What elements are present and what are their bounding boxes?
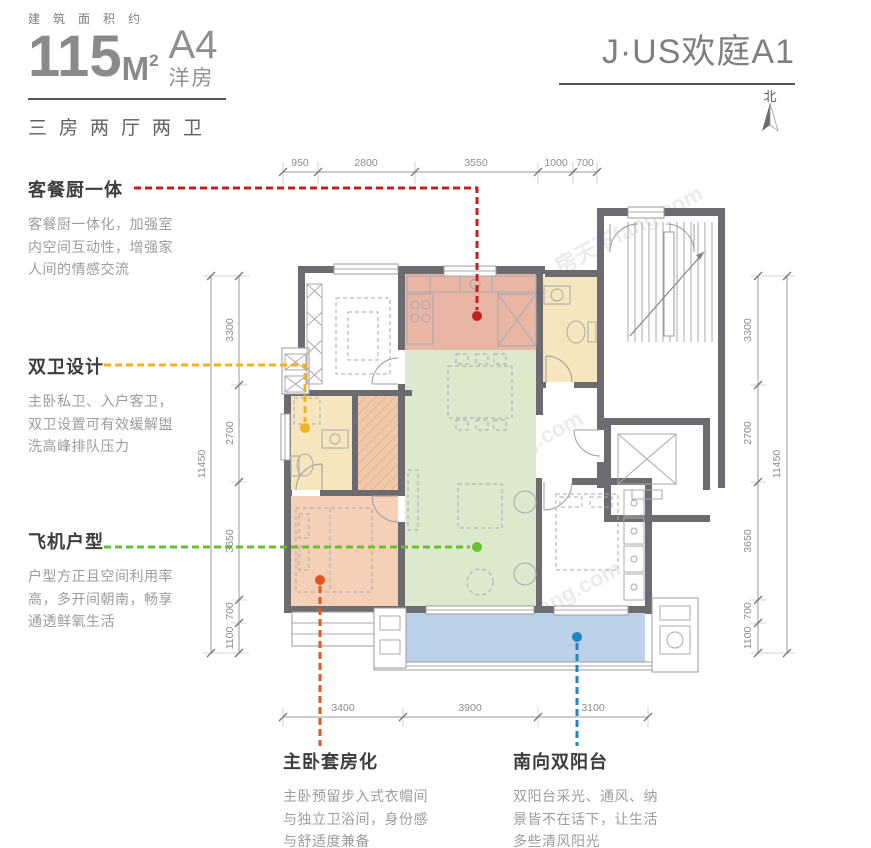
svg-text:3300: 3300 [224,318,236,342]
svg-text:3900: 3900 [458,702,482,714]
project-divider [559,83,795,85]
svg-text:700: 700 [742,602,754,620]
svg-text:3650: 3650 [742,529,754,553]
north-arrow-icon: 北 [762,89,778,131]
callout-master: 主卧套房化 主卧预留步入式衣帽间与独立卫浴间，身份感与舒适度兼备 [283,748,453,848]
svg-text:3650: 3650 [224,529,236,553]
svg-text:950: 950 [291,157,309,169]
unit-type: A4 洋房 [169,25,218,89]
svg-text:2700: 2700 [224,421,236,445]
callout-desc: 双阳台采光、通风、纳景皆不在话下，让生活多些清风阳光 [513,785,661,848]
svg-text:1000: 1000 [544,157,568,169]
stair-core [618,222,712,499]
callout-desc: 主卧私卫、入户客卫，双卫设置可有效缓解盥洗高峰排队压力 [28,390,176,458]
dimensions-top: 950 2800 3550 1000 700 [279,157,601,184]
svg-text:11450: 11450 [771,450,783,479]
callout-title: 飞机户型 [28,528,198,554]
svg-text:北: 北 [763,89,776,104]
svg-text:3550: 3550 [464,157,488,169]
room-balcony [406,613,645,664]
area-number: 115 [28,29,122,84]
callout-living: 飞机户型 户型方正且空间利用率高，多开间朝南，畅享通透鲜氧生活 [28,528,198,633]
callout-title: 主卧套房化 [283,748,453,774]
callout-desc: 客餐厨一体化，加强室内空间互动性，增强家人间的情感交流 [28,213,176,281]
svg-text:2700: 2700 [742,421,754,445]
stair-arrow-icon [696,252,704,260]
dimensions-right: 3300 2700 3650 700 1100 11450 [742,272,795,657]
bay-window [292,612,386,646]
callout-title: 双卫设计 [28,353,198,379]
callout-desc: 主卧预留步入式衣帽间与独立卫浴间，身份感与舒适度兼备 [283,785,431,848]
unit-type-code: A4 [169,25,218,65]
project-block: J·US欢庭A1 [559,24,795,85]
callout-bath: 双卫设计 主卧私卫、入户客卫，双卫设置可有效缓解盥洗高峰排队压力 [28,353,198,458]
svg-text:3300: 3300 [742,318,754,342]
svg-text:1100: 1100 [742,627,754,650]
balcony-utility-left [374,608,406,668]
title-divider [28,98,226,100]
stair-stringer [664,232,674,336]
callout-kitchen: 客餐厨一体 客餐厨一体化，加强室内空间互动性，增强家人间的情感交流 [28,176,198,281]
room-walkin-closet [358,396,398,490]
callout-title: 南向双阳台 [513,748,683,774]
svg-text:700: 700 [576,157,594,169]
svg-text:1100: 1100 [224,627,236,650]
area-unit: M2 [122,50,159,88]
dimensions-left: 3300 2700 3650 700 1100 11450 [196,272,249,657]
balcony-utility-right [652,598,698,672]
layout-summary: 三房两厅两卫 [28,113,226,140]
project-name: J·US欢庭A1 [559,24,795,73]
floorplan-page: 房天下fang.com 房天下fang.com 房天下fang.com [0,0,871,848]
title-block: 建筑面积约 115 M2 A4 洋房 三房两厅两卫 [28,10,226,140]
elevator-x-icon [618,434,676,484]
callout-desc: 户型方正且空间利用率高，多开间朝南，畅享通透鲜氧生活 [28,565,176,633]
dimensions-bottom: 3400 3900 3100 [279,702,652,727]
room-master-bedroom [291,496,398,606]
svg-text:3400: 3400 [331,702,355,714]
svg-text:700: 700 [224,602,236,620]
callout-balcony: 南向双阳台 双阳台采光、通风、纳景皆不在话下，让生活多些清风阳光 [513,748,683,848]
callout-title: 客餐厨一体 [28,176,198,202]
svg-text:2800: 2800 [354,157,378,169]
unit-type-name: 洋房 [169,68,218,89]
svg-text:3100: 3100 [581,702,605,714]
